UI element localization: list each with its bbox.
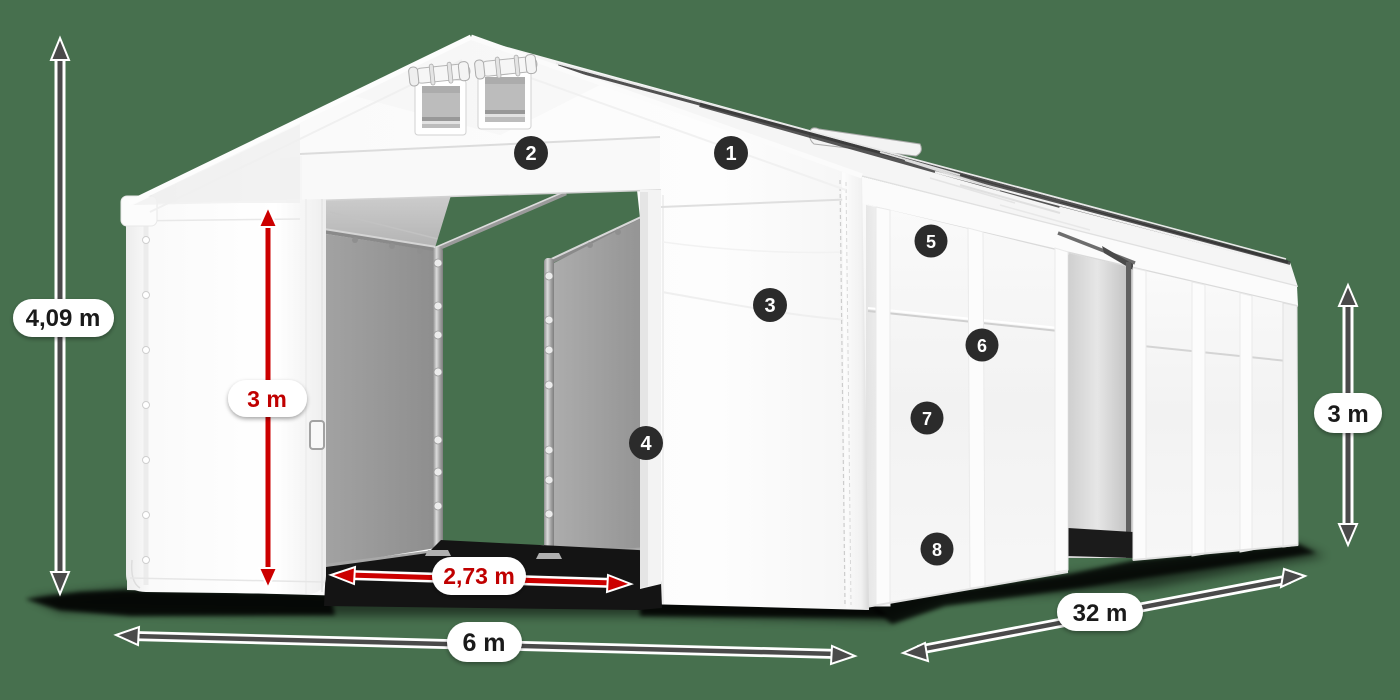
svg-text:5: 5 [926, 232, 936, 252]
svg-text:2,73 m: 2,73 m [443, 563, 515, 589]
svg-text:3 m: 3 m [247, 386, 287, 412]
svg-text:6: 6 [977, 336, 987, 356]
svg-text:7: 7 [922, 409, 932, 429]
svg-text:3 m: 3 m [1327, 401, 1368, 428]
svg-text:2: 2 [525, 143, 536, 165]
svg-text:8: 8 [932, 540, 942, 560]
svg-text:4,09 m: 4,09 m [26, 305, 101, 332]
svg-text:1: 1 [725, 143, 736, 165]
svg-text:3: 3 [764, 295, 775, 317]
svg-text:4: 4 [640, 433, 652, 455]
svg-text:6 m: 6 m [462, 629, 505, 657]
svg-text:32 m: 32 m [1073, 600, 1128, 627]
